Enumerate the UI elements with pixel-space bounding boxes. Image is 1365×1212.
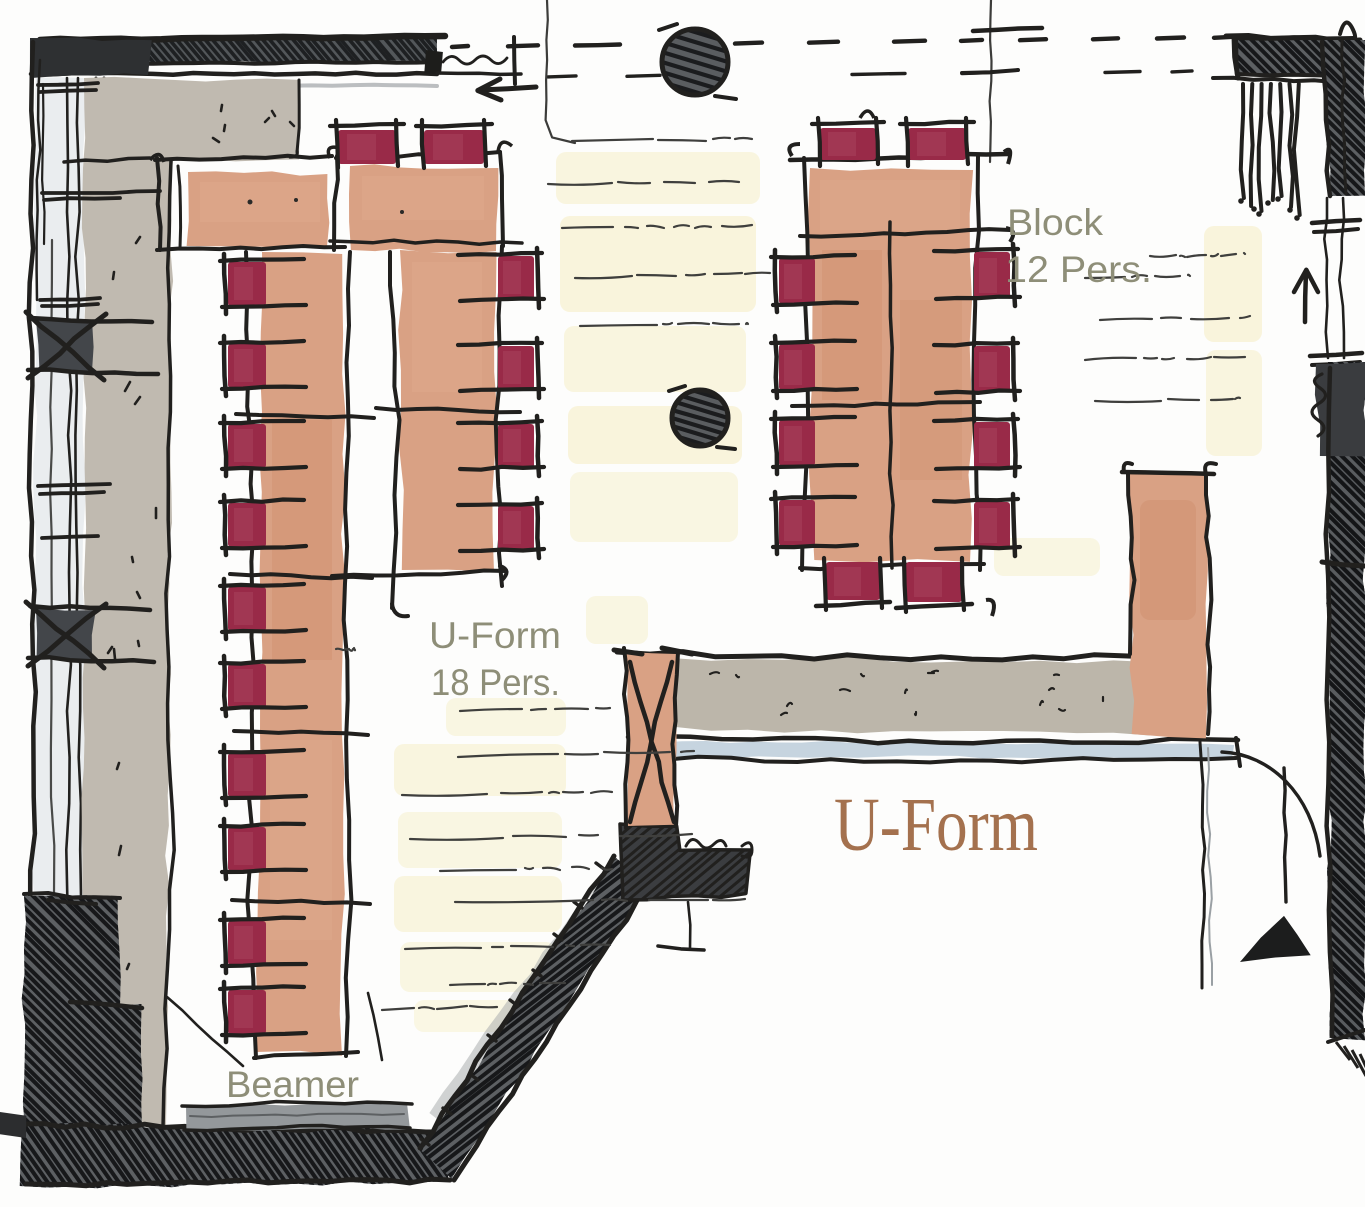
svg-text:U-Form: U-Form bbox=[429, 615, 561, 656]
svg-text:Block: Block bbox=[1007, 202, 1104, 243]
svg-text:U-Form: U-Form bbox=[834, 783, 1038, 867]
svg-text:18 Pers.: 18 Pers. bbox=[431, 662, 560, 703]
svg-text:12 Pers.: 12 Pers. bbox=[1005, 249, 1152, 290]
svg-text:Beamer: Beamer bbox=[226, 1064, 359, 1105]
